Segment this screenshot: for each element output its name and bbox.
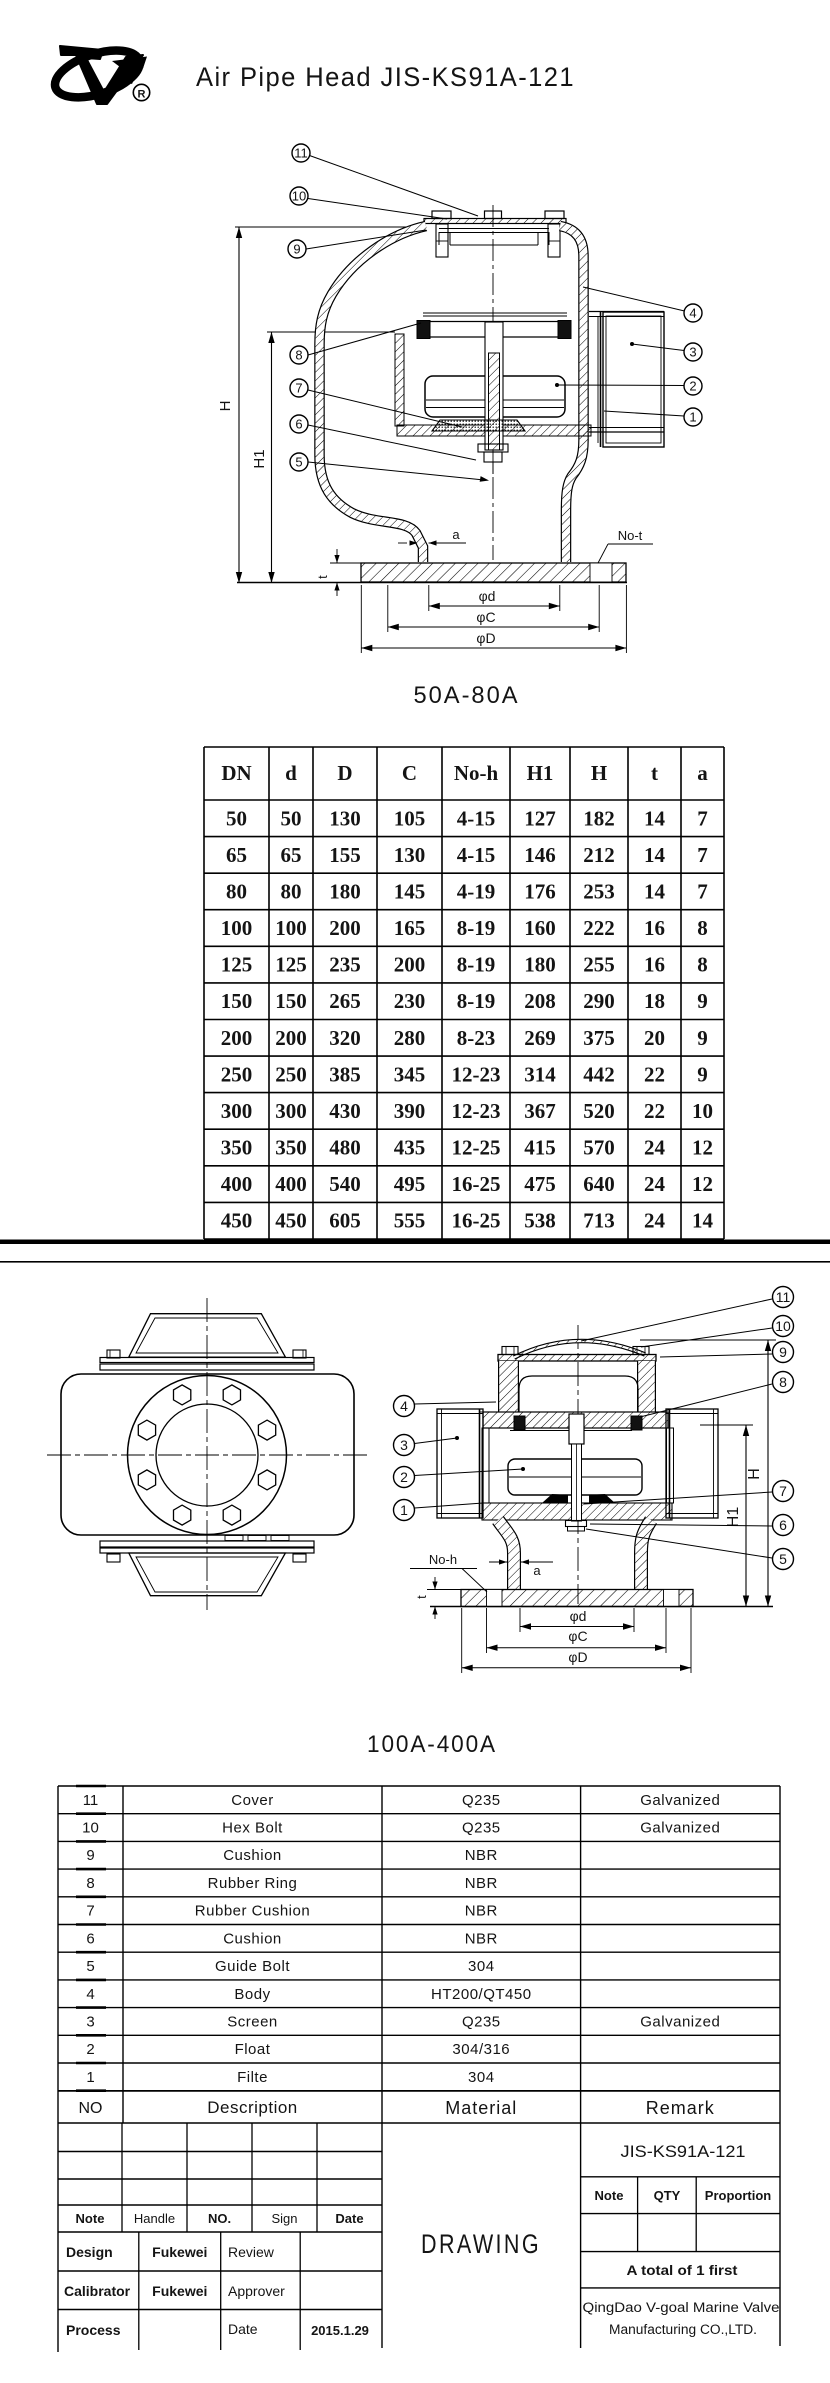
svg-text:JIS-KS91A-121: JIS-KS91A-121: [621, 2142, 746, 2161]
svg-text:R: R: [138, 89, 146, 101]
svg-text:180: 180: [329, 879, 361, 903]
svg-text:2: 2: [86, 2041, 94, 2058]
svg-text:20: 20: [644, 1026, 665, 1050]
svg-text:5: 5: [779, 1551, 787, 1567]
svg-text:100: 100: [221, 916, 253, 940]
svg-text:4-19: 4-19: [457, 879, 496, 903]
svg-text:No-h: No-h: [429, 1552, 457, 1567]
svg-text:Note: Note: [595, 2188, 624, 2203]
svg-text:222: 222: [583, 916, 615, 940]
svg-text:9: 9: [697, 1062, 708, 1086]
svg-text:16: 16: [644, 916, 665, 940]
svg-text:400: 400: [221, 1172, 253, 1196]
svg-text:φD: φD: [568, 1649, 587, 1665]
svg-text:555: 555: [394, 1209, 426, 1233]
svg-text:304/316: 304/316: [452, 2041, 510, 2058]
svg-text:65: 65: [281, 843, 302, 867]
svg-text:2015.1.29: 2015.1.29: [311, 2323, 369, 2338]
svg-text:540: 540: [329, 1172, 361, 1196]
svg-text:D: D: [337, 761, 352, 785]
svg-text:269: 269: [524, 1026, 556, 1050]
svg-text:No-t: No-t: [618, 528, 643, 543]
svg-text:QingDao V-goal Marine Valve: QingDao V-goal Marine Valve: [583, 2300, 780, 2315]
svg-text:7: 7: [779, 1483, 787, 1499]
svg-text:442: 442: [583, 1062, 615, 1086]
svg-text:Note: Note: [76, 2211, 105, 2226]
svg-text:495: 495: [394, 1172, 426, 1196]
svg-text:Galvanized: Galvanized: [640, 1792, 720, 1809]
svg-text:125: 125: [275, 953, 307, 977]
svg-text:Approver: Approver: [228, 2283, 285, 2299]
svg-text:100A-400A: 100A-400A: [367, 1731, 497, 1758]
svg-text:450: 450: [221, 1209, 253, 1233]
svg-text:50: 50: [226, 806, 247, 830]
svg-text:Body: Body: [234, 1986, 270, 2003]
svg-text:16: 16: [644, 953, 665, 977]
svg-text:8: 8: [86, 1875, 94, 1892]
svg-text:435: 435: [394, 1136, 426, 1160]
svg-text:375: 375: [583, 1026, 615, 1050]
svg-text:24: 24: [644, 1172, 666, 1196]
svg-text:H: H: [591, 761, 607, 785]
svg-text:Material: Material: [445, 2098, 517, 2118]
svg-text:400: 400: [275, 1172, 307, 1196]
svg-text:NBR: NBR: [465, 1930, 498, 1947]
svg-text:2: 2: [689, 379, 696, 394]
svg-text:8-19: 8-19: [457, 953, 496, 977]
svg-text:DRAWING: DRAWING: [421, 2229, 541, 2259]
svg-text:10: 10: [775, 1318, 791, 1334]
svg-text:5: 5: [86, 1958, 94, 1975]
svg-text:QTY: QTY: [654, 2188, 681, 2203]
svg-text:C: C: [402, 761, 417, 785]
svg-text:φC: φC: [568, 1628, 587, 1644]
svg-text:314: 314: [524, 1062, 556, 1086]
svg-text:12-25: 12-25: [452, 1136, 501, 1160]
svg-text:350: 350: [221, 1136, 253, 1160]
svg-text:4: 4: [400, 1398, 408, 1414]
svg-text:11: 11: [776, 1289, 791, 1305]
svg-text:200: 200: [394, 953, 426, 977]
svg-text:520: 520: [583, 1099, 615, 1123]
svg-text:180: 180: [524, 953, 556, 977]
svg-text:12-23: 12-23: [452, 1062, 501, 1086]
svg-text:1: 1: [689, 410, 696, 425]
svg-text:8: 8: [697, 953, 708, 977]
svg-text:14: 14: [644, 806, 666, 830]
svg-text:11: 11: [294, 146, 308, 161]
svg-text:7: 7: [86, 1903, 94, 1920]
svg-text:390: 390: [394, 1099, 426, 1123]
svg-text:165: 165: [394, 916, 426, 940]
svg-text:H1: H1: [251, 449, 268, 468]
svg-text:6: 6: [295, 417, 302, 432]
svg-text:t: t: [651, 761, 658, 785]
svg-text:Guide Bolt: Guide Bolt: [215, 1958, 290, 1975]
svg-text:NBR: NBR: [465, 1903, 498, 1920]
svg-text:φd: φd: [479, 588, 496, 604]
svg-text:Q235: Q235: [462, 1820, 501, 1837]
svg-text:4-15: 4-15: [457, 806, 496, 830]
svg-text:155: 155: [329, 843, 361, 867]
svg-text:H1: H1: [527, 761, 554, 785]
svg-text:Description: Description: [207, 2098, 298, 2117]
svg-text:Air Pipe Head JIS-KS91A-121: Air Pipe Head JIS-KS91A-121: [196, 62, 575, 92]
svg-text:8: 8: [295, 348, 302, 363]
svg-text:d: d: [285, 761, 297, 785]
svg-text:3: 3: [86, 2013, 94, 2030]
svg-text:160: 160: [524, 916, 556, 940]
svg-text:16-25: 16-25: [452, 1209, 501, 1233]
svg-text:Galvanized: Galvanized: [640, 1820, 720, 1837]
svg-text:8-19: 8-19: [457, 989, 496, 1013]
svg-text:475: 475: [524, 1172, 556, 1196]
svg-text:18: 18: [644, 989, 665, 1013]
svg-text:480: 480: [329, 1136, 361, 1160]
svg-text:105: 105: [394, 806, 426, 830]
svg-text:127: 127: [524, 806, 556, 830]
svg-text:6: 6: [86, 1930, 94, 1947]
svg-text:Hex Bolt: Hex Bolt: [222, 1820, 283, 1837]
svg-text:9: 9: [293, 242, 300, 257]
svg-text:14: 14: [644, 843, 666, 867]
svg-text:250: 250: [221, 1062, 253, 1086]
svg-text:130: 130: [329, 806, 361, 830]
svg-text:Fukewei: Fukewei: [152, 2283, 207, 2299]
svg-text:DN: DN: [221, 761, 251, 785]
svg-text:7: 7: [295, 381, 302, 396]
svg-text:280: 280: [394, 1026, 426, 1050]
svg-text:200: 200: [329, 916, 361, 940]
svg-text:345: 345: [394, 1062, 426, 1086]
svg-text:304: 304: [468, 2069, 495, 2086]
svg-text:415: 415: [524, 1136, 556, 1160]
svg-text:12: 12: [692, 1136, 713, 1160]
svg-text:320: 320: [329, 1026, 361, 1050]
svg-text:11: 11: [83, 1792, 99, 1809]
svg-text:212: 212: [583, 843, 615, 867]
svg-text:640: 640: [583, 1172, 615, 1196]
svg-text:9: 9: [779, 1344, 787, 1360]
svg-text:7: 7: [697, 806, 708, 830]
svg-text:7: 7: [697, 843, 708, 867]
svg-text:Remark: Remark: [646, 2098, 715, 2118]
svg-text:NO.: NO.: [208, 2211, 231, 2226]
svg-text:230: 230: [394, 989, 426, 1013]
svg-text:290: 290: [583, 989, 615, 1013]
svg-text:Screen: Screen: [227, 2013, 278, 2030]
svg-text:125: 125: [221, 953, 253, 977]
svg-text:Rubber Cushion: Rubber Cushion: [195, 1903, 310, 1920]
svg-text:Review: Review: [228, 2244, 275, 2260]
svg-text:8-23: 8-23: [457, 1026, 496, 1050]
svg-text:50: 50: [281, 806, 302, 830]
svg-text:4: 4: [86, 1986, 94, 2003]
svg-text:145: 145: [394, 879, 426, 903]
svg-text:9: 9: [697, 1026, 708, 1050]
svg-text:12-23: 12-23: [452, 1099, 501, 1123]
svg-text:8: 8: [779, 1374, 787, 1390]
svg-text:22: 22: [644, 1062, 665, 1086]
svg-text:HT200/QT450: HT200/QT450: [431, 1986, 532, 2003]
svg-text:14: 14: [644, 879, 666, 903]
svg-text:Date: Date: [335, 2211, 363, 2226]
svg-text:100: 100: [275, 916, 307, 940]
svg-text:Sign: Sign: [271, 2211, 297, 2226]
svg-text:130: 130: [394, 843, 426, 867]
svg-text:6: 6: [779, 1517, 787, 1533]
svg-text:16-25: 16-25: [452, 1172, 501, 1196]
svg-text:φC: φC: [476, 609, 495, 625]
svg-text:300: 300: [275, 1099, 307, 1123]
svg-text:150: 150: [275, 989, 307, 1013]
svg-text:Float: Float: [235, 2041, 271, 2058]
svg-text:250: 250: [275, 1062, 307, 1086]
svg-text:5: 5: [295, 455, 302, 470]
svg-text:350: 350: [275, 1136, 307, 1160]
svg-text:Date: Date: [228, 2321, 258, 2337]
svg-text:Handle: Handle: [134, 2211, 175, 2226]
svg-text:80: 80: [281, 879, 302, 903]
svg-text:H1: H1: [725, 1507, 742, 1528]
svg-text:Q235: Q235: [462, 1792, 501, 1809]
svg-text:255: 255: [583, 953, 615, 977]
svg-text:8: 8: [697, 916, 708, 940]
svg-text:φD: φD: [476, 630, 495, 646]
svg-text:4: 4: [689, 306, 696, 321]
svg-text:Cushion: Cushion: [223, 1930, 282, 1947]
svg-text:A total of 1 first: A total of 1 first: [627, 2262, 738, 2278]
svg-text:22: 22: [644, 1099, 665, 1123]
svg-text:430: 430: [329, 1099, 361, 1123]
svg-text:50A-80A: 50A-80A: [414, 682, 520, 709]
svg-text:385: 385: [329, 1062, 361, 1086]
svg-text:2: 2: [400, 1469, 408, 1485]
svg-text:Galvanized: Galvanized: [640, 2013, 720, 2030]
svg-text:367: 367: [524, 1099, 556, 1123]
svg-text:182: 182: [583, 806, 615, 830]
svg-text:Q235: Q235: [462, 2013, 501, 2030]
svg-text:a: a: [452, 527, 460, 542]
svg-text:253: 253: [583, 879, 615, 903]
svg-text:12: 12: [692, 1172, 713, 1196]
svg-text:200: 200: [275, 1026, 307, 1050]
svg-text:538: 538: [524, 1209, 556, 1233]
svg-text:200: 200: [221, 1026, 253, 1050]
svg-text:8-19: 8-19: [457, 916, 496, 940]
svg-text:Calibrator: Calibrator: [64, 2283, 131, 2299]
svg-text:605: 605: [329, 1209, 361, 1233]
svg-text:570: 570: [583, 1136, 615, 1160]
svg-text:10: 10: [82, 1820, 99, 1837]
svg-text:t: t: [414, 1595, 429, 1599]
svg-text:7: 7: [697, 879, 708, 903]
svg-text:3: 3: [689, 345, 696, 360]
svg-text:No-h: No-h: [454, 761, 499, 785]
svg-text:Cover: Cover: [231, 1792, 274, 1809]
svg-text:Cushion: Cushion: [223, 1847, 282, 1864]
svg-text:65: 65: [226, 843, 247, 867]
svg-text:3: 3: [400, 1437, 408, 1453]
svg-text:φd: φd: [570, 1608, 587, 1624]
svg-text:24: 24: [644, 1136, 666, 1160]
svg-text:a: a: [533, 1563, 541, 1578]
svg-text:Design: Design: [66, 2244, 113, 2260]
svg-text:H: H: [217, 401, 234, 412]
svg-text:208: 208: [524, 989, 556, 1013]
svg-text:265: 265: [329, 989, 361, 1013]
svg-text:Process: Process: [66, 2322, 121, 2338]
svg-text:NO: NO: [79, 2100, 103, 2117]
svg-text:4-15: 4-15: [457, 843, 496, 867]
svg-text:9: 9: [697, 989, 708, 1013]
svg-text:146: 146: [524, 843, 556, 867]
svg-text:9: 9: [86, 1847, 94, 1864]
svg-text:Manufacturing CO.,LTD.: Manufacturing CO.,LTD.: [609, 2322, 757, 2337]
svg-text:1: 1: [86, 2069, 94, 2086]
svg-text:a: a: [697, 761, 708, 785]
svg-text:NBR: NBR: [465, 1875, 498, 1892]
svg-text:Proportion: Proportion: [705, 2188, 771, 2203]
svg-text:235: 235: [329, 953, 361, 977]
svg-text:150: 150: [221, 989, 253, 1013]
svg-text:80: 80: [226, 879, 247, 903]
svg-text:Rubber Ring: Rubber Ring: [208, 1875, 298, 1892]
svg-text:t: t: [315, 575, 330, 579]
svg-text:713: 713: [583, 1209, 615, 1233]
svg-text:450: 450: [275, 1209, 307, 1233]
svg-text:176: 176: [524, 879, 556, 903]
svg-text:NBR: NBR: [465, 1847, 498, 1864]
svg-text:14: 14: [692, 1209, 714, 1233]
svg-text:24: 24: [644, 1209, 666, 1233]
svg-text:H: H: [746, 1468, 763, 1480]
svg-text:300: 300: [221, 1099, 253, 1123]
svg-text:Fukewei: Fukewei: [152, 2244, 207, 2260]
svg-text:10: 10: [292, 189, 306, 204]
svg-text:Filte: Filte: [237, 2069, 268, 2086]
svg-text:304: 304: [468, 1958, 495, 1975]
svg-text:1: 1: [400, 1502, 408, 1518]
svg-text:10: 10: [692, 1099, 713, 1123]
